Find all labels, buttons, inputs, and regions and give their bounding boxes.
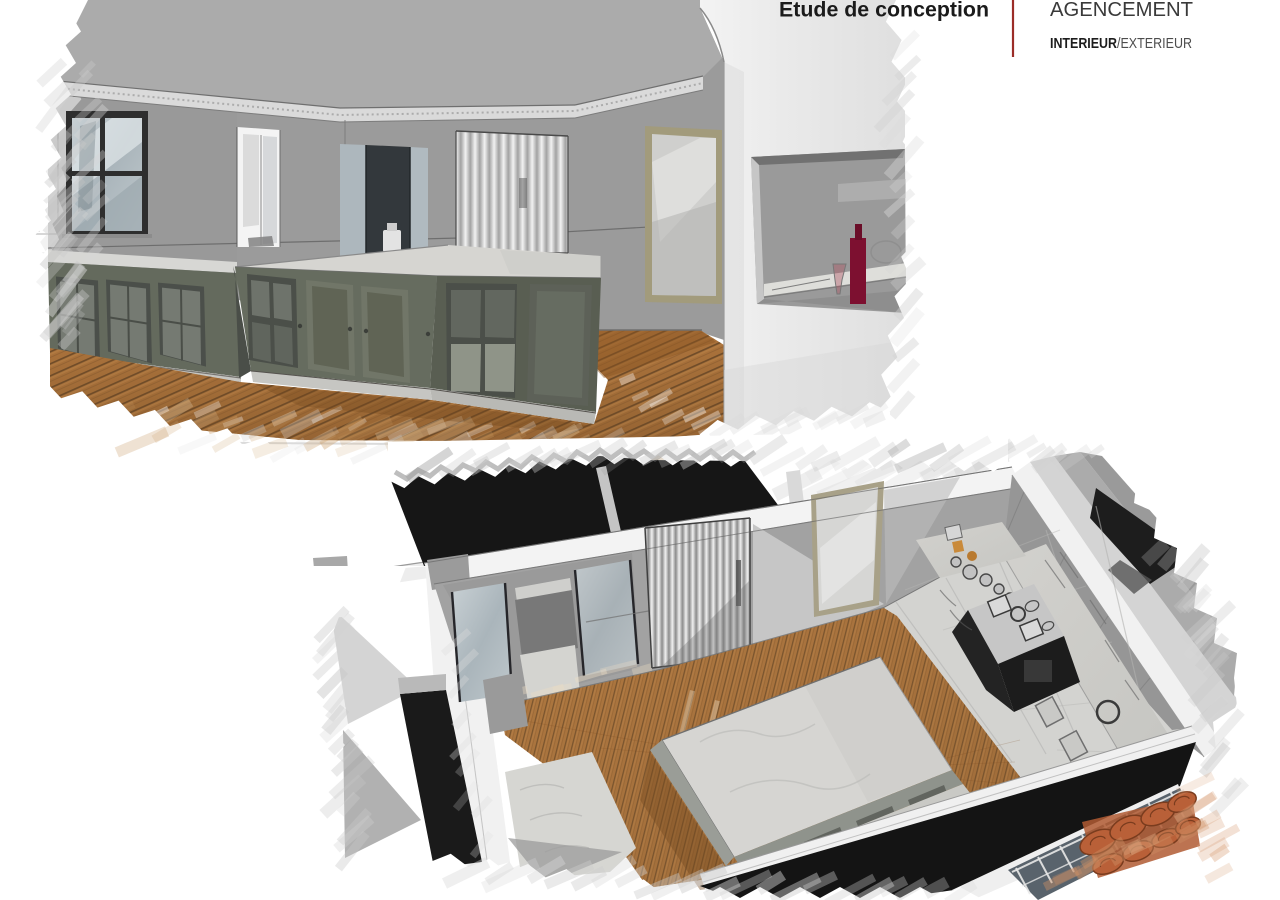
svg-text:AGENCEMENT: AGENCEMENT bbox=[1050, 0, 1193, 21]
svg-text:/EXTERIEUR: /EXTERIEUR bbox=[1117, 35, 1192, 52]
svg-text:INTERIEUR: INTERIEUR bbox=[1050, 35, 1117, 52]
svg-text:Etude de conception: Etude de conception bbox=[779, 0, 989, 22]
